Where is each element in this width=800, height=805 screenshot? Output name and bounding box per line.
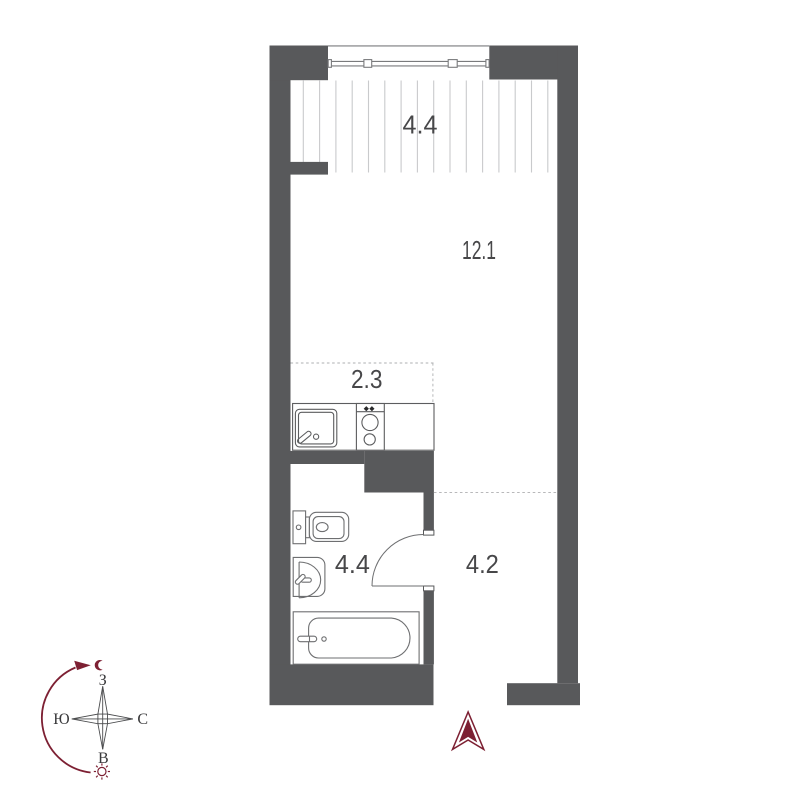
svg-text:З: З [99,672,107,689]
svg-text:4.4: 4.4 [403,109,438,139]
svg-text:С: С [137,711,148,728]
svg-text:4.2: 4.2 [466,549,499,579]
svg-text:4.4: 4.4 [335,549,370,579]
svg-text:В: В [98,750,109,767]
svg-text:Ю: Ю [53,711,69,728]
svg-text:12.1: 12.1 [462,235,496,265]
svg-text:2.3: 2.3 [351,364,383,394]
